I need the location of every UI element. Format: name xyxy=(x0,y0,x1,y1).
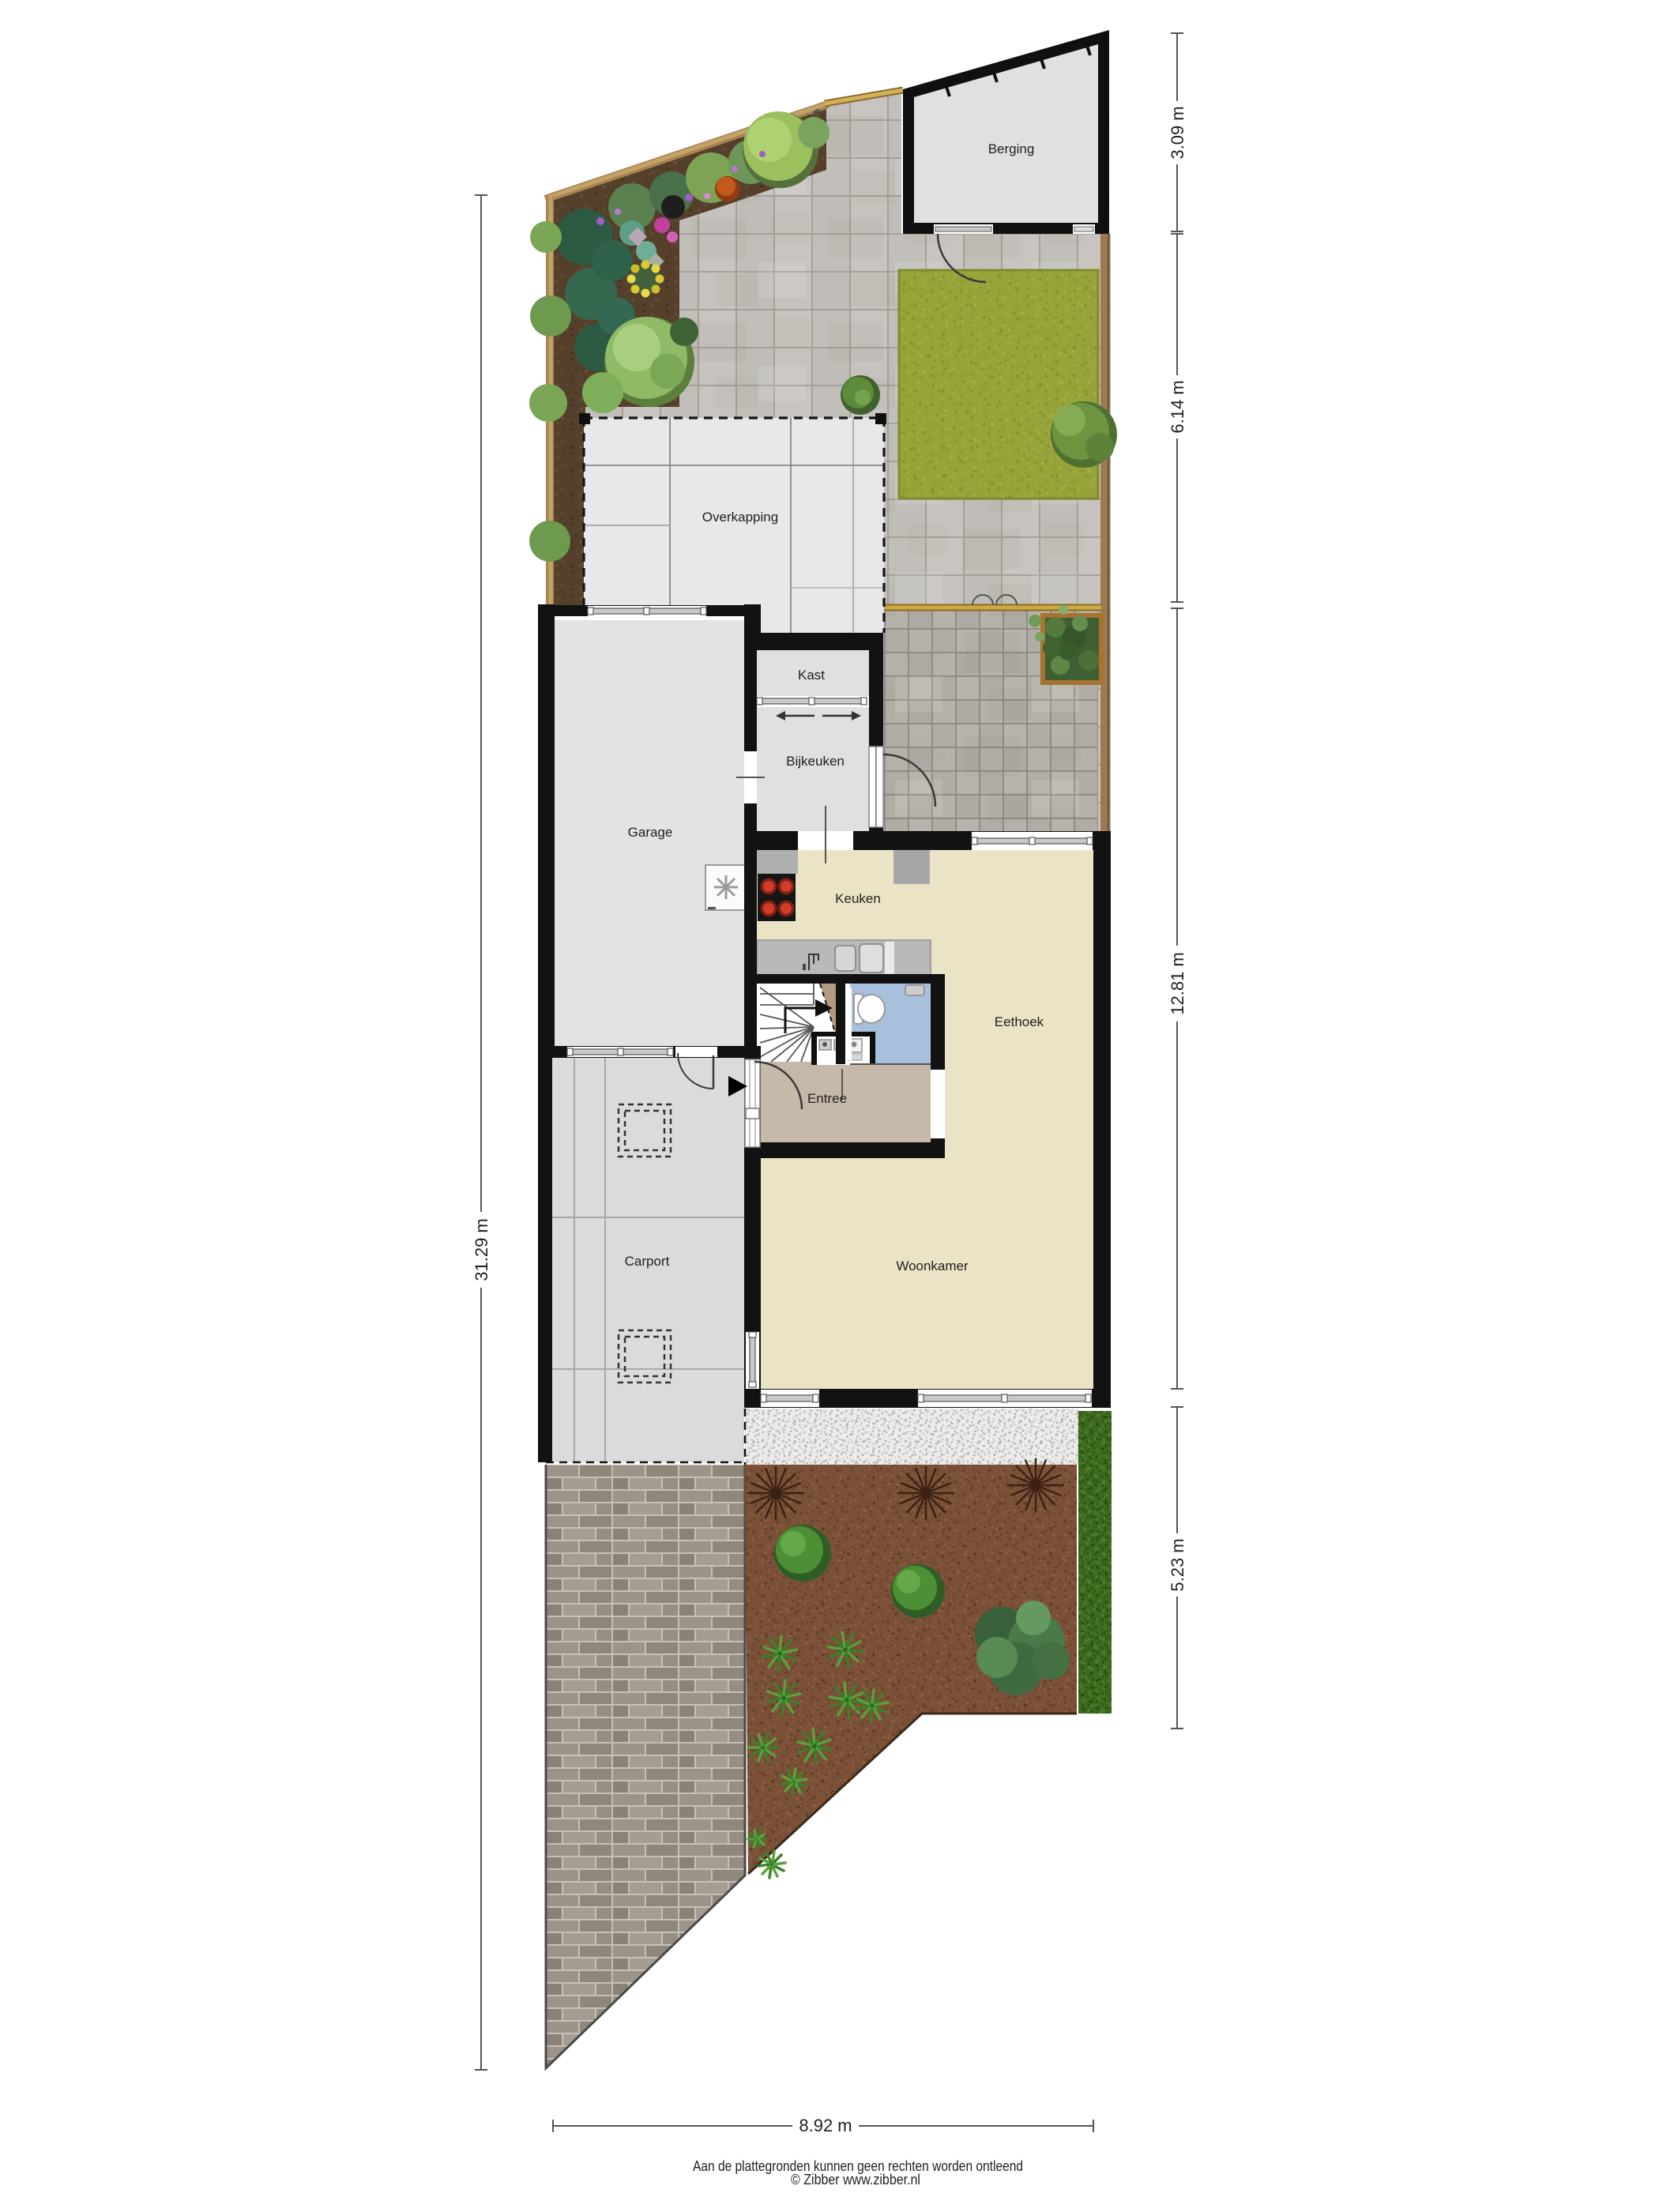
svg-text:31.29 m: 31.29 m xyxy=(472,1218,491,1281)
svg-text:Keuken: Keuken xyxy=(835,891,881,906)
svg-text:Overkapping: Overkapping xyxy=(702,510,778,525)
svg-text:© Zibber www.zibber.nl: © Zibber www.zibber.nl xyxy=(791,2172,920,2188)
svg-text:Garage: Garage xyxy=(628,825,673,840)
svg-text:Entree: Entree xyxy=(807,1091,847,1106)
svg-text:12.81 m: 12.81 m xyxy=(1168,952,1187,1015)
svg-text:Eethoek: Eethoek xyxy=(995,1014,1044,1029)
svg-text:5.23 m: 5.23 m xyxy=(1168,1538,1187,1591)
svg-text:Bijkeuken: Bijkeuken xyxy=(786,754,845,769)
svg-text:8.92 m: 8.92 m xyxy=(799,2116,852,2135)
svg-text:Kast: Kast xyxy=(798,668,825,683)
svg-text:3.09 m: 3.09 m xyxy=(1168,106,1187,159)
svg-text:Woonkamer: Woonkamer xyxy=(896,1258,969,1273)
svg-text:Berging: Berging xyxy=(988,141,1035,156)
svg-text:Carport: Carport xyxy=(625,1254,670,1269)
svg-text:6.14 m: 6.14 m xyxy=(1168,380,1187,433)
